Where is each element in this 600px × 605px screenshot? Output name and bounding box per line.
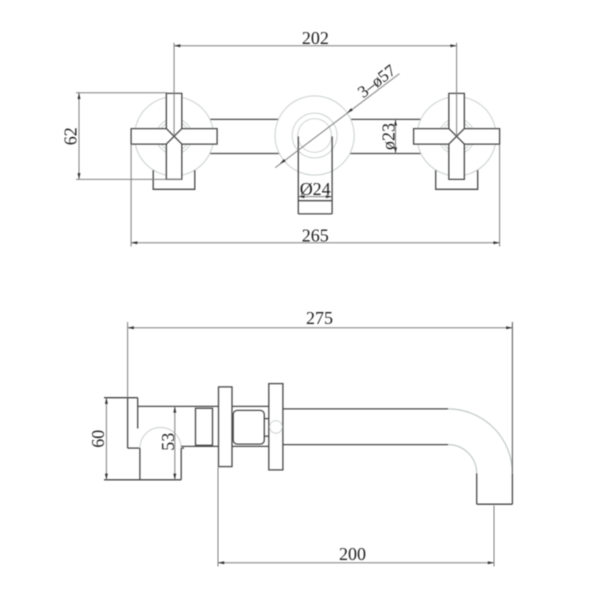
svg-text:200: 200 [339, 544, 366, 564]
svg-text:265: 265 [302, 225, 329, 245]
svg-text:60: 60 [88, 430, 108, 448]
svg-text:62: 62 [61, 127, 81, 145]
svg-text:275: 275 [306, 308, 333, 328]
svg-text:Ø24: Ø24 [300, 179, 331, 199]
svg-text:202: 202 [302, 28, 329, 48]
svg-text:53: 53 [158, 433, 178, 451]
svg-text:ø23: ø23 [378, 123, 398, 150]
